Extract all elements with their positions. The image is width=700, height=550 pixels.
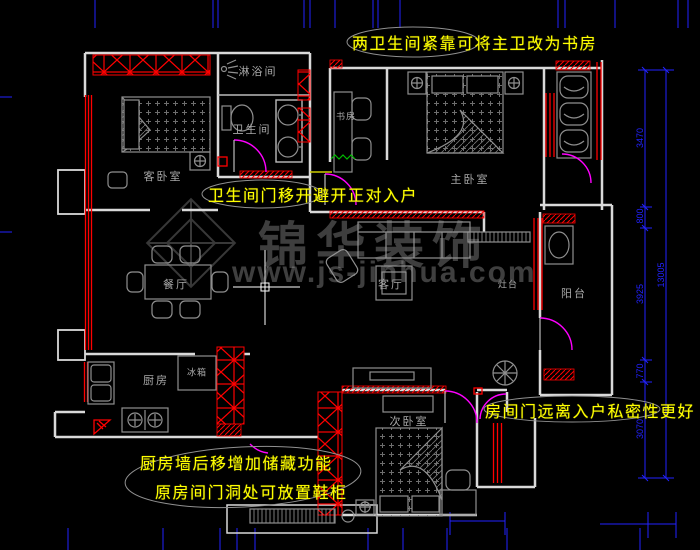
- window-symbols: [310, 155, 355, 172]
- watermark-logo: [147, 199, 235, 287]
- annotation-top: 两卫生间紧靠可将主卫改为书房: [352, 30, 597, 54]
- new-cabinet-top-left: [93, 55, 210, 75]
- dimension-800: 800: [635, 208, 645, 223]
- room-label-fridge: 冰箱: [187, 366, 207, 379]
- room-label-second-bedroom: 次卧室: [390, 413, 429, 429]
- room-label-master-bedroom: 主卧室: [451, 171, 490, 187]
- wardrobe-icon: [557, 72, 591, 158]
- room-label-study: 书房: [336, 110, 356, 123]
- master-bed-icon: [408, 72, 523, 153]
- second-bed-icon: [356, 428, 442, 516]
- washing-machine-icon: [545, 226, 573, 264]
- dimension-770: 770: [635, 363, 645, 378]
- study-desk-icon: [334, 92, 371, 172]
- floorplan-canvas[interactable]: 淋浴间 卫生间 客卧室 书房 主卧室 餐厅 客厅 灶台 阳台 厨房 冰箱 次卧室…: [0, 0, 700, 550]
- room-label-bathroom: 卫生间: [233, 121, 272, 137]
- annotation-entry: 房间门远离入户私密性更好: [485, 398, 695, 422]
- dimension-3470: 3470: [635, 128, 645, 148]
- room-label-balcony: 阳台: [561, 285, 587, 301]
- dimension-total: 13005: [656, 262, 666, 287]
- annotation-kitchen-1: 厨房墙后移增加储藏功能: [140, 450, 333, 474]
- dimension-3070: 3070: [635, 419, 645, 439]
- annotation-kitchen-2: 原房间门洞处可放置鞋柜: [155, 479, 348, 503]
- shower-head-icon: [222, 60, 239, 79]
- room-label-kitchen: 厨房: [143, 372, 169, 388]
- new-storage-column-kitchen: [217, 347, 244, 424]
- desk-icon: [440, 470, 476, 515]
- dimension-3925: 3925: [635, 284, 645, 304]
- kitchen-sink-icon: [88, 362, 114, 404]
- room-label-guest-bedroom: 客卧室: [144, 168, 183, 184]
- room-label-dining: 餐厅: [163, 276, 189, 292]
- room-label-shower: 淋浴间: [239, 63, 278, 79]
- stove-icon: [122, 408, 168, 432]
- watermark-url: www.js-jinhua.com: [232, 256, 537, 290]
- annotation-hall: 卫生间门移开避开正对入户: [208, 182, 418, 206]
